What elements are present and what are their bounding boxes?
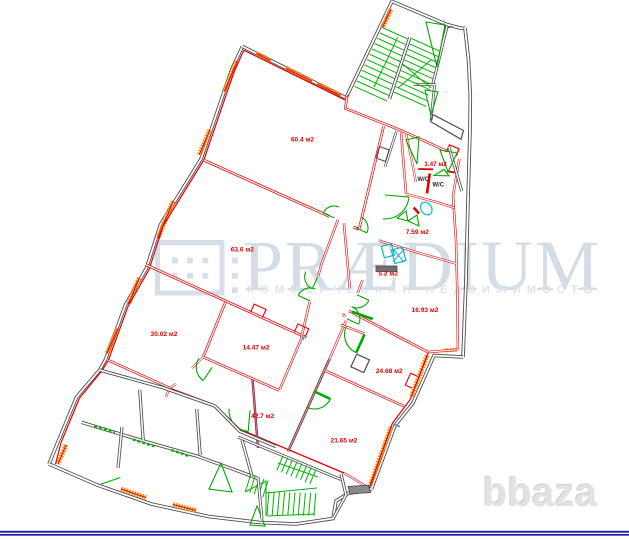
svg-text:63.6 м2: 63.6 м2 [231,247,255,254]
svg-text:3.47 м2: 3.47 м2 [424,161,447,168]
svg-text:24.68 м2: 24.68 м2 [376,368,403,375]
svg-text:21.65 м2: 21.65 м2 [331,437,358,444]
svg-text:5.2 м2: 5.2 м2 [378,270,398,277]
svg-text:42.7 м2: 42.7 м2 [251,413,275,420]
svg-text:bbaza: bbaza [483,471,598,515]
svg-text:60.4 м2: 60.4 м2 [291,137,315,144]
svg-text:30.02 м2: 30.02 м2 [151,331,178,338]
svg-text:W/C: W/C [417,177,429,183]
svg-text:КОММЕРЧЕСКАЯ НЕДВИЖИМОСТЬ: КОММЕРЧЕСКАЯ НЕДВИЖИМОСТЬ [247,284,598,296]
svg-text:16.93 м2: 16.93 м2 [412,307,439,314]
svg-text:14.47 м2: 14.47 м2 [243,344,270,351]
svg-text:W/C: W/C [432,183,444,189]
svg-text:7.59 м2: 7.59 м2 [406,229,430,236]
